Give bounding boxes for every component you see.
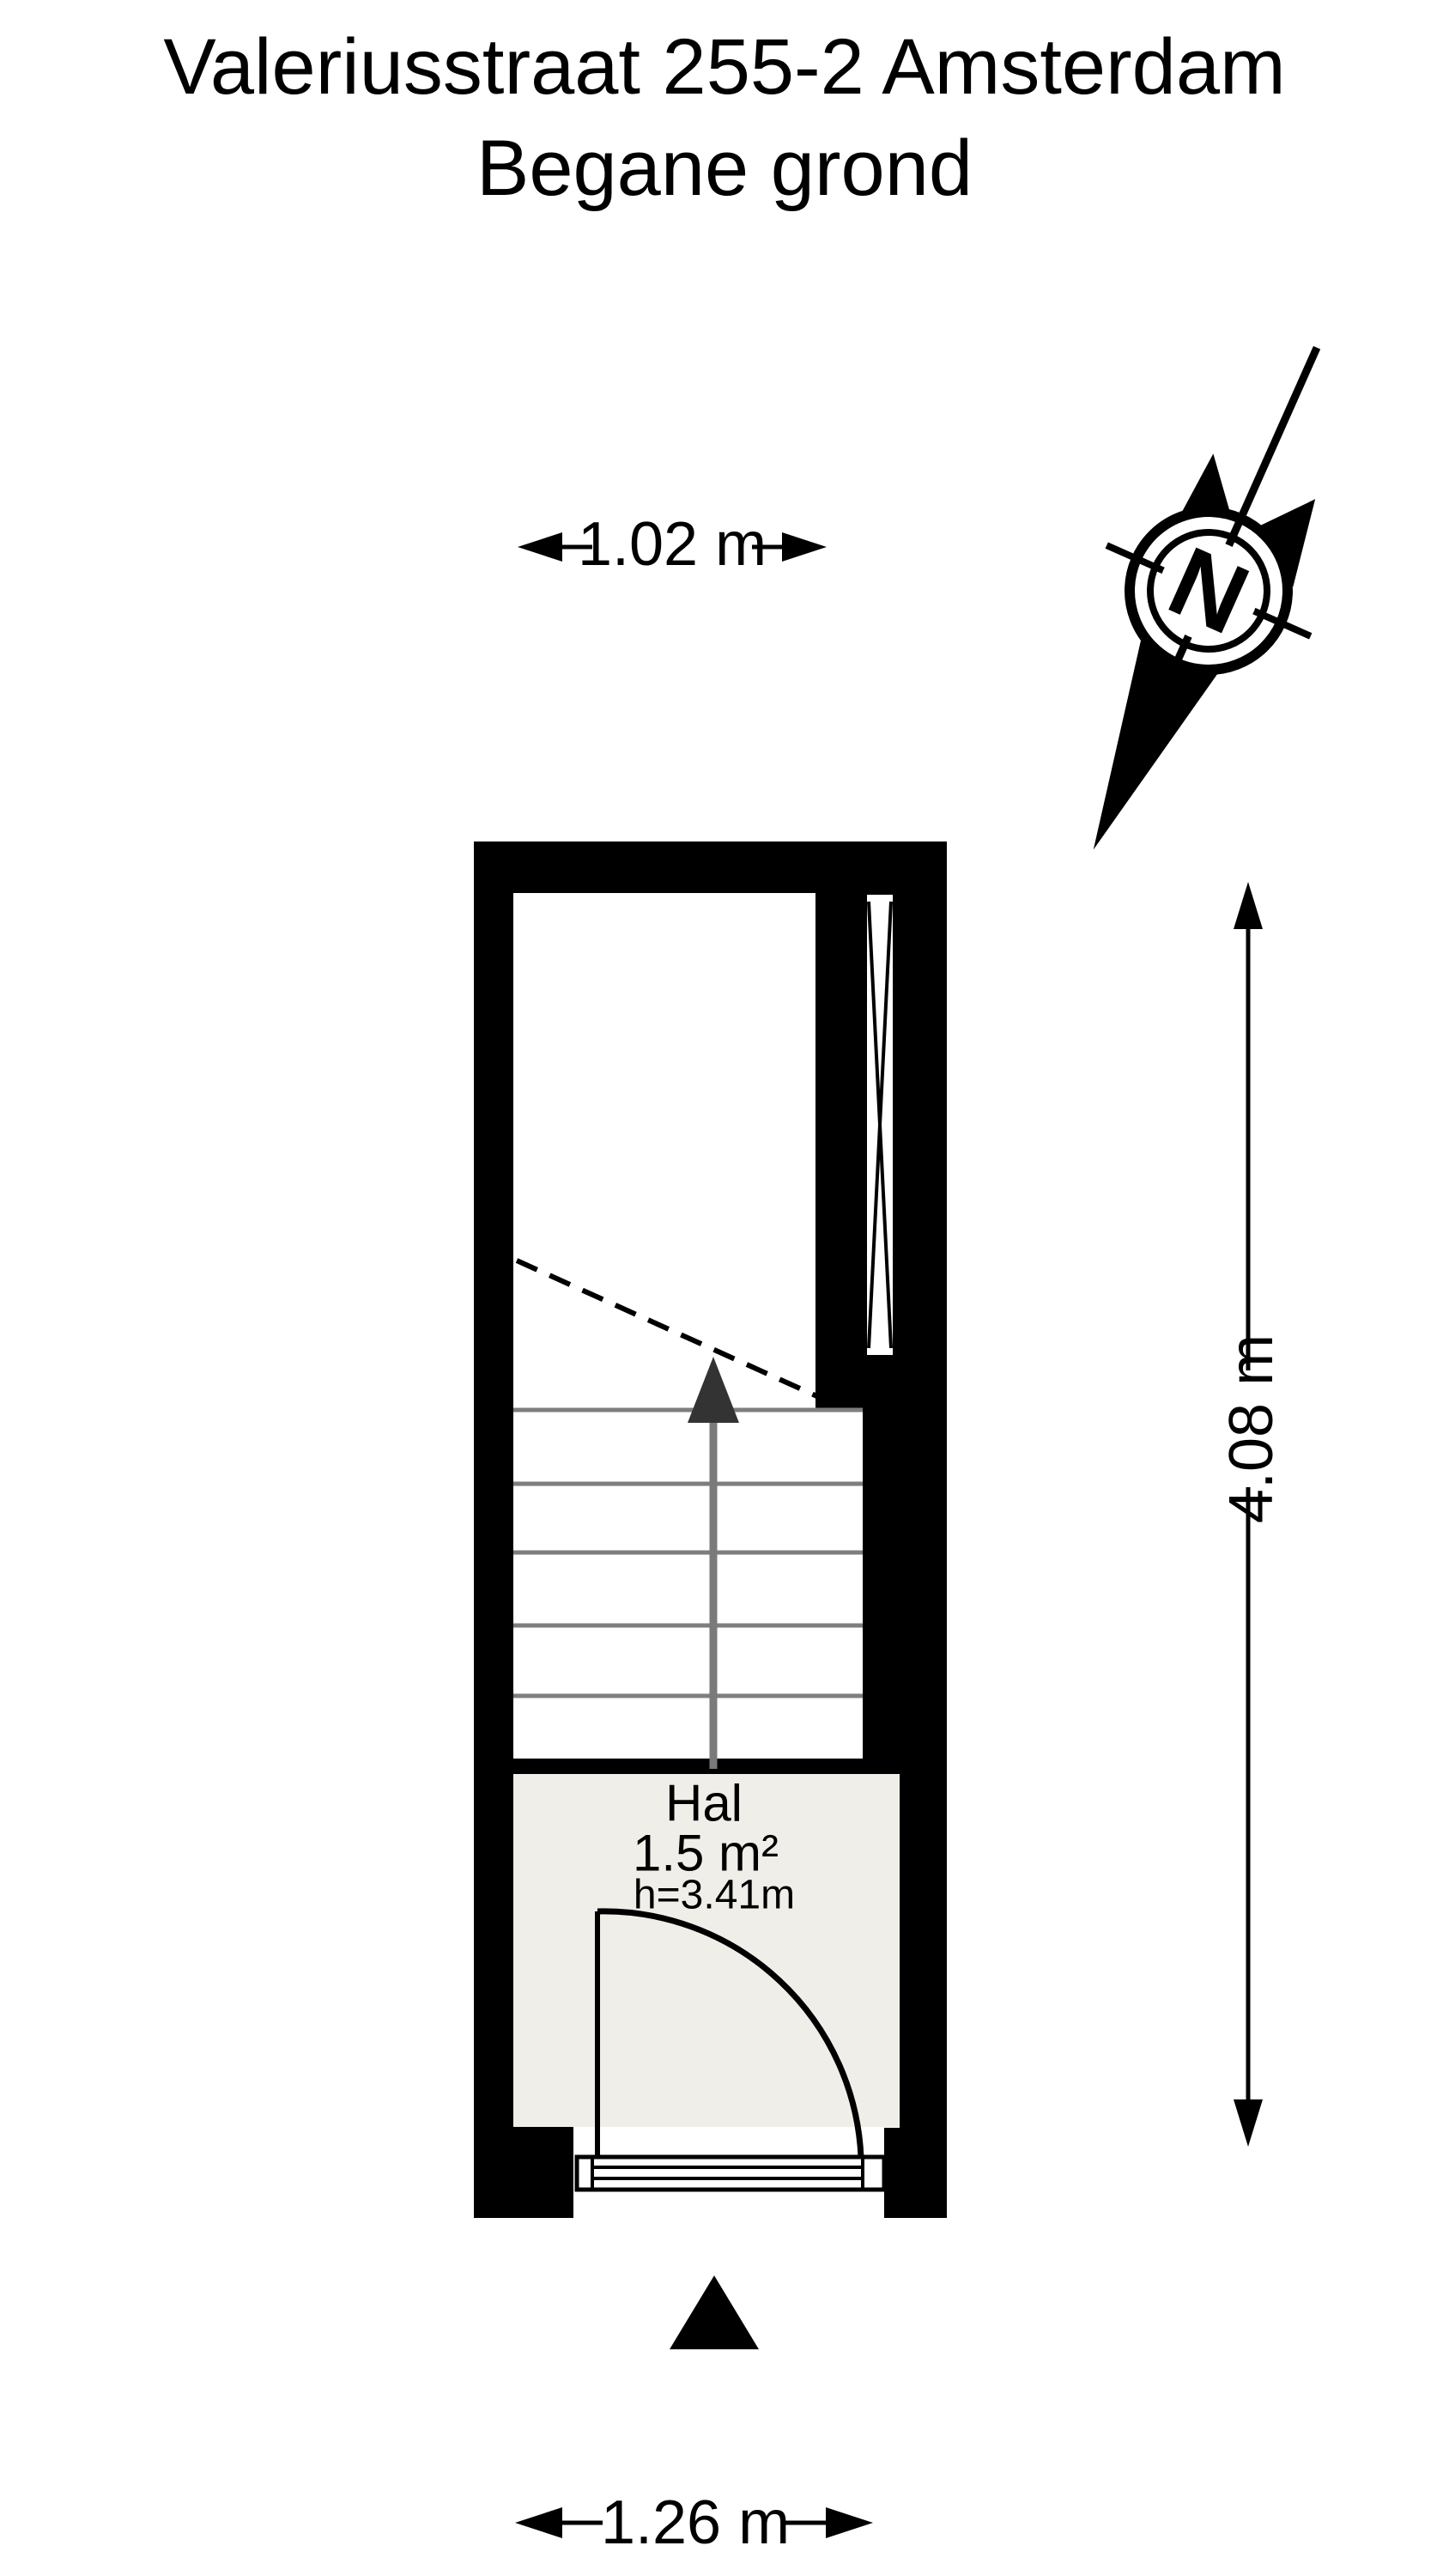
threshold-frame: [577, 2157, 884, 2190]
floorplan-page: Valeriusstraat 255-2 Amsterdam Begane gr…: [0, 0, 1449, 2576]
wall-stair-hal-step: [513, 1759, 900, 1774]
stair-direction-arrow: [688, 1357, 739, 1769]
wall-block-bottom-left: [474, 2127, 573, 2218]
arrow-right-icon: [782, 532, 827, 562]
shaft-x-symbol: [867, 895, 893, 1355]
floorplan-drawing: N: [0, 0, 1449, 2576]
arrow-up-icon: [1234, 882, 1263, 929]
wall-right-mid: [863, 1408, 947, 1774]
stair-cut-dashed-line: [517, 1261, 828, 1401]
room-height-label: h=3.41m: [634, 1872, 795, 1919]
wall-left: [474, 841, 513, 2218]
dimension-right-label: 4.08 m: [1216, 1334, 1287, 1523]
wall-block-bottom-right: [884, 2128, 947, 2218]
entrance-threshold: [577, 2157, 884, 2190]
entrance-marker-icon: [670, 2275, 759, 2349]
stair-treads: [513, 1410, 863, 1696]
wall-top: [474, 841, 947, 893]
compass-rose-icon: N: [991, 302, 1419, 895]
dimension-top-label: 1.02 m: [578, 509, 767, 580]
wall-right-hal: [900, 1774, 947, 2128]
arrow-down-icon: [1234, 2099, 1263, 2147]
dimension-bottom-label: 1.26 m: [601, 2488, 790, 2558]
arrow-right-icon: [826, 2507, 873, 2538]
stair-arrow-head: [688, 1357, 739, 1423]
arrow-left-icon: [515, 2507, 562, 2538]
arrow-left-icon: [518, 532, 562, 562]
